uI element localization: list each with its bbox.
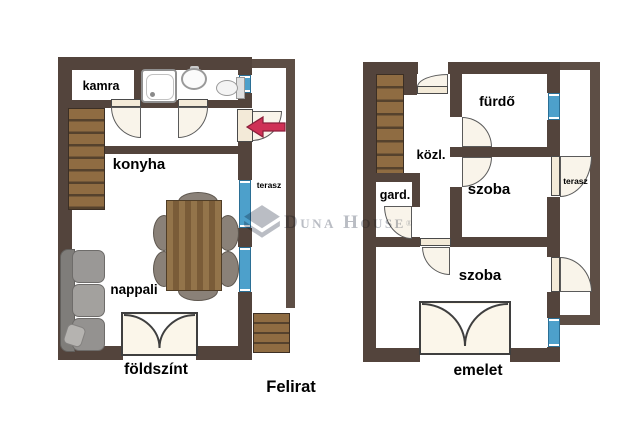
toilet-bowl — [216, 80, 238, 96]
window — [548, 318, 560, 347]
window — [548, 93, 560, 120]
terrace-door-leaf — [551, 156, 560, 196]
entrance-arrow-icon — [245, 114, 287, 141]
french-window — [419, 301, 511, 355]
door-leaf — [417, 86, 448, 94]
wall — [208, 100, 252, 108]
door-swing-arc — [111, 107, 141, 138]
washbasin — [181, 68, 207, 90]
wall — [450, 147, 560, 157]
wall — [363, 348, 420, 362]
terrace-steps — [253, 313, 290, 353]
window — [239, 247, 251, 292]
sofa — [60, 249, 106, 352]
room-label-terasz-upper: terasz — [559, 177, 592, 186]
floor-plan-image: kamra konyha nappali terasz földszínt — [0, 0, 640, 441]
door-leaf — [178, 99, 208, 107]
sofa-cushion — [72, 250, 105, 283]
caption: Felirat — [246, 378, 336, 396]
room-label-szoba-middle: szoba — [459, 182, 519, 199]
wall — [547, 62, 560, 93]
room-label-nappali: nappali — [104, 283, 164, 298]
staircase — [68, 108, 105, 210]
french-window — [121, 312, 198, 356]
wall — [72, 100, 112, 108]
floor-label-emelet: emelet — [428, 362, 528, 379]
sofa-cushion — [72, 284, 105, 317]
door-leaf — [111, 99, 141, 107]
wall — [404, 74, 417, 95]
watermark-registered-mark: ® — [406, 219, 412, 228]
terrace-door-arc — [560, 257, 592, 292]
wall — [547, 347, 560, 362]
room-label-szoba-lower: szoba — [450, 268, 510, 285]
wall — [238, 292, 252, 346]
wall — [450, 237, 560, 247]
room-label-konyha: konyha — [108, 157, 170, 174]
wall — [450, 74, 462, 117]
room-label-kamra: kamra — [72, 80, 130, 94]
door-swing-arc — [178, 107, 208, 138]
wall — [105, 146, 252, 154]
door-leaf — [420, 238, 451, 246]
terrace-wall — [286, 59, 295, 308]
wall — [547, 292, 560, 318]
wall — [363, 173, 420, 182]
door-swing-arc — [462, 117, 492, 147]
room-label-terasz-ground: terasz — [252, 181, 286, 190]
room-label-kozl: közl. — [404, 148, 458, 162]
door-swing-arc — [422, 247, 450, 275]
duna-house-logo-icon — [244, 203, 280, 243]
terrace-door-leaf — [551, 257, 560, 292]
wall — [238, 57, 252, 75]
dining-table — [166, 200, 222, 291]
wall — [196, 346, 252, 360]
watermark-text: Duna House — [284, 212, 406, 234]
shower-drain — [150, 92, 155, 97]
wall — [448, 62, 560, 74]
room-label-furdo: fürdő — [462, 94, 532, 109]
floor-label-foldszint: földszínt — [106, 361, 206, 378]
staircase — [376, 74, 404, 177]
watermark: Duna House® — [244, 199, 414, 247]
wall — [547, 197, 560, 257]
terrace-wall — [560, 315, 600, 325]
shower-tray — [141, 69, 177, 103]
